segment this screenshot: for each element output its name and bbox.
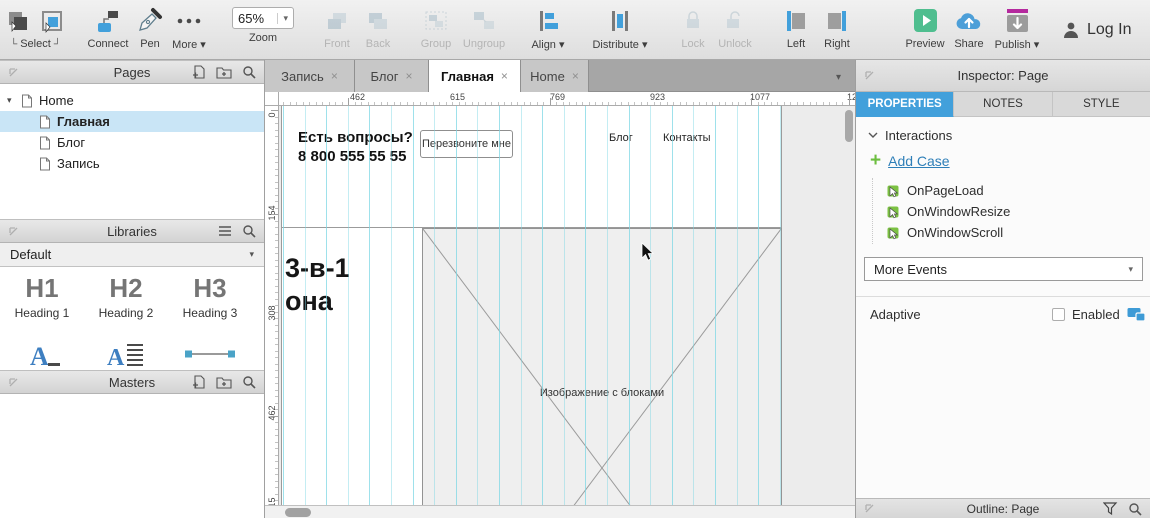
canvas-horizontal-scrollbar[interactable] bbox=[265, 505, 855, 518]
distribute-tool[interactable]: Distribute ▾ bbox=[588, 7, 652, 51]
event-row-onwindowresize[interactable]: OnWindowResize bbox=[886, 204, 1010, 219]
align-left-icon bbox=[784, 7, 808, 35]
preview-button[interactable]: Preview bbox=[901, 7, 949, 50]
tab-list-caret-icon[interactable]: ▾ bbox=[836, 72, 841, 83]
select-contain-icon[interactable] bbox=[40, 9, 65, 34]
align-left-label: Left bbox=[787, 38, 805, 50]
preview-play-icon bbox=[913, 7, 938, 35]
select-label: Select bbox=[20, 38, 51, 50]
event-label: OnWindowResize bbox=[907, 204, 1010, 219]
publish-label: Publish ▾ bbox=[995, 38, 1040, 51]
adaptive-enabled-checkbox[interactable] bbox=[1052, 308, 1065, 321]
publish-button[interactable]: Publish ▾ bbox=[990, 7, 1044, 51]
outline-filter-icon[interactable] bbox=[1103, 502, 1118, 516]
front-label: Front bbox=[324, 38, 350, 50]
tab-close-icon[interactable]: × bbox=[406, 69, 413, 83]
svg-text:A: A bbox=[30, 342, 49, 369]
adaptive-label: Adaptive bbox=[870, 307, 921, 322]
axure-app-window: └Select┘ Connect Pen More ▾ bbox=[0, 0, 1150, 518]
align-left-tool[interactable]: Left bbox=[777, 7, 815, 50]
publish-icon bbox=[1005, 7, 1030, 35]
more-label: More ▾ bbox=[172, 38, 206, 51]
share-button[interactable]: Share bbox=[947, 7, 991, 50]
zoom-value: 65% bbox=[238, 11, 264, 26]
page-heading-text[interactable]: 3-в-1 она bbox=[285, 252, 350, 318]
back-button: Back bbox=[357, 7, 399, 50]
login-label: Log In bbox=[1087, 21, 1131, 39]
lock-button: Lock bbox=[672, 7, 714, 50]
pen-icon bbox=[137, 7, 163, 35]
event-label: OnPageLoad bbox=[907, 183, 984, 198]
paragraph-widget-icon: A bbox=[103, 339, 149, 369]
page-header-section: Есть вопросы? 8 800 555 55 55 Перезвонит… bbox=[282, 106, 781, 228]
page-file-icon bbox=[39, 157, 51, 171]
left-sidebar: Pages ▾ bbox=[0, 60, 265, 518]
more-dots-icon bbox=[174, 7, 204, 35]
tab-label: Главная bbox=[441, 69, 494, 84]
more-events-value: More Events bbox=[874, 262, 947, 277]
image-placeholder[interactable]: Изображение с блоками bbox=[422, 228, 782, 505]
library-item-paragraph[interactable]: A bbox=[84, 339, 168, 370]
library-item-heading3[interactable]: H3 Heading 3 bbox=[168, 273, 252, 320]
v-ruler: 0 154 308 462 615 bbox=[265, 106, 279, 505]
plus-icon: + bbox=[870, 154, 881, 168]
h-ruler-label: 615 bbox=[450, 92, 465, 102]
library-item-label[interactable]: A bbox=[0, 339, 84, 370]
library-select[interactable]: Default ▾ bbox=[0, 243, 264, 267]
adaptive-enabled-row: Enabled bbox=[1052, 307, 1146, 322]
heading3-label: Heading 3 bbox=[168, 306, 252, 320]
connect-tool[interactable]: Connect bbox=[80, 7, 136, 50]
align-icon bbox=[536, 7, 560, 35]
interactions-section-header[interactable]: Interactions bbox=[868, 128, 952, 143]
unlock-label: Unlock bbox=[718, 38, 752, 50]
add-master-folder-icon[interactable] bbox=[216, 375, 232, 389]
canvas-horizontal-scrollbar-thumb[interactable] bbox=[285, 508, 311, 517]
ruler-corner bbox=[265, 92, 279, 106]
page-row-label: Запись bbox=[57, 156, 100, 171]
tab-close-icon[interactable]: × bbox=[501, 69, 508, 83]
expand-arrow-icon[interactable]: ▾ bbox=[7, 95, 15, 106]
share-label: Share bbox=[954, 38, 983, 50]
pages-tree: ▾ Home Главная Блог bbox=[0, 86, 264, 174]
page-row-zapis[interactable]: Запись bbox=[0, 153, 264, 174]
library-select-caret-icon: ▾ bbox=[249, 249, 254, 260]
tab-label: Блог bbox=[370, 69, 398, 84]
masters-panel-header: Masters bbox=[0, 370, 264, 394]
inspector-tabs: PROPERTIES NOTES STYLE bbox=[856, 92, 1150, 117]
login-button[interactable]: Log In bbox=[1062, 0, 1131, 60]
more-tool[interactable]: More ▾ bbox=[164, 7, 214, 51]
select-label-row: └Select┘ bbox=[7, 38, 64, 50]
event-label: OnWindowScroll bbox=[907, 225, 1003, 240]
h-ruler-label: 1077 bbox=[750, 92, 770, 102]
h-ruler: 462 615 769 923 1077 12 bbox=[279, 92, 855, 106]
unlock-icon bbox=[722, 7, 748, 35]
library-select-value: Default bbox=[10, 247, 51, 262]
library-item-hline[interactable] bbox=[168, 339, 252, 370]
tab-properties[interactable]: PROPERTIES bbox=[856, 92, 954, 117]
wireframe-page[interactable]: Есть вопросы? 8 800 555 55 55 Перезвонит… bbox=[281, 106, 782, 505]
front-icon bbox=[324, 7, 350, 35]
ungroup-icon bbox=[471, 7, 497, 35]
pen-tool[interactable]: Pen bbox=[133, 7, 167, 50]
back-icon bbox=[365, 7, 391, 35]
collapse-panel-icon[interactable] bbox=[8, 377, 19, 388]
placeholder-x-icon bbox=[423, 229, 781, 505]
library-item-heading1[interactable]: H1 Heading 1 bbox=[0, 273, 84, 320]
inspector-panel: Inspector: Page PROPERTIES NOTES STYLE I… bbox=[855, 60, 1150, 518]
canvas-vertical-scrollbar-thumb[interactable] bbox=[845, 110, 853, 142]
heading2-label: Heading 2 bbox=[84, 306, 168, 320]
share-cloud-icon bbox=[954, 7, 984, 35]
tab-zapis[interactable]: Запись × bbox=[265, 60, 355, 92]
add-page-icon[interactable] bbox=[192, 65, 206, 79]
back-label: Back bbox=[366, 38, 390, 50]
tab-close-icon[interactable]: × bbox=[331, 69, 338, 83]
collapse-panel-icon[interactable] bbox=[864, 503, 875, 514]
connect-label: Connect bbox=[88, 38, 129, 50]
page-file-icon bbox=[21, 94, 33, 108]
event-row-onpageload[interactable]: OnPageLoad bbox=[886, 183, 984, 198]
page-row-home[interactable]: ▾ Home bbox=[0, 90, 264, 111]
select-tool[interactable]: └Select┘ bbox=[6, 7, 65, 50]
outline-panel-header: Outline: Page bbox=[856, 498, 1150, 518]
select-right-bracket: ┘ bbox=[54, 39, 61, 50]
ungroup-label: Ungroup bbox=[463, 38, 505, 50]
page-file-icon bbox=[39, 115, 51, 129]
group-label: Group bbox=[421, 38, 452, 50]
page-row-label: Блог bbox=[57, 135, 85, 150]
heading2-glyph: H2 bbox=[84, 273, 168, 303]
heading1-label: Heading 1 bbox=[0, 306, 84, 320]
event-cursor-icon bbox=[886, 184, 900, 198]
libraries-search-icon[interactable] bbox=[242, 224, 256, 238]
pen-label: Pen bbox=[140, 38, 160, 50]
collapse-panel-icon[interactable] bbox=[8, 67, 19, 78]
heading3-glyph: H3 bbox=[168, 273, 252, 303]
document-tabbar: Запись × Блог × Главная × Home × ▾ bbox=[265, 60, 855, 92]
align-label: Align ▾ bbox=[531, 38, 564, 51]
events-guide-line bbox=[872, 178, 873, 244]
adaptive-devices-icon[interactable] bbox=[1127, 307, 1146, 322]
add-case-row[interactable]: + Add Case bbox=[870, 153, 950, 169]
add-case-link[interactable]: Add Case bbox=[888, 153, 949, 169]
ungroup-button: Ungroup bbox=[456, 7, 512, 50]
outline-search-icon[interactable] bbox=[1128, 502, 1142, 516]
inspector-title: Inspector: Page bbox=[856, 68, 1150, 83]
libraries-panel-header: Libraries bbox=[0, 219, 264, 243]
group-icon bbox=[423, 7, 449, 35]
align-right-tool[interactable]: Right bbox=[816, 7, 858, 50]
mouse-cursor-icon bbox=[641, 242, 657, 262]
nav-blog-link[interactable]: Блог bbox=[609, 132, 633, 144]
connect-icon bbox=[95, 7, 121, 35]
zoom-label: Zoom bbox=[249, 32, 277, 44]
label-widget-icon: A bbox=[22, 339, 62, 369]
toolbar: └Select┘ Connect Pen More ▾ bbox=[0, 0, 1150, 60]
chevron-down-icon bbox=[868, 132, 878, 139]
page-row-glavnaya[interactable]: Главная bbox=[0, 111, 264, 132]
tab-home[interactable]: Home × bbox=[521, 60, 589, 92]
user-icon bbox=[1062, 21, 1080, 39]
tab-blog[interactable]: Блог × bbox=[355, 60, 429, 92]
group-button: Group bbox=[413, 7, 459, 50]
canvas-area: Запись × Блог × Главная × Home × ▾ 462 6… bbox=[265, 60, 855, 518]
library-items-grid: H1 Heading 1 H2 Heading 2 H3 Heading 3 A bbox=[0, 267, 264, 370]
select-intersect-icon[interactable] bbox=[6, 9, 31, 34]
inspector-divider bbox=[856, 296, 1150, 297]
lock-icon bbox=[682, 7, 704, 35]
v-ruler-label: 462 bbox=[267, 402, 277, 424]
preview-label: Preview bbox=[905, 38, 944, 50]
h-ruler-label: 462 bbox=[350, 92, 365, 102]
library-item-heading2[interactable]: H2 Heading 2 bbox=[84, 273, 168, 320]
libraries-menu-icon[interactable] bbox=[218, 225, 232, 237]
zoom-tool: 65% ▾ Zoom bbox=[228, 7, 298, 44]
inspector-header: Inspector: Page bbox=[856, 60, 1150, 92]
event-row-onwindowscroll[interactable]: OnWindowScroll bbox=[886, 225, 1003, 240]
page-row-label: Home bbox=[39, 93, 74, 108]
h-ruler-label: 769 bbox=[550, 92, 565, 102]
h-ruler-label: 923 bbox=[650, 92, 665, 102]
pages-search-icon[interactable] bbox=[242, 65, 256, 79]
align-tool[interactable]: Align ▾ bbox=[522, 7, 574, 51]
canvas-viewport[interactable]: Есть вопросы? 8 800 555 55 55 Перезвонит… bbox=[279, 106, 855, 505]
distribute-icon bbox=[608, 7, 632, 35]
interactions-title: Interactions bbox=[885, 128, 952, 143]
front-button: Front bbox=[316, 7, 358, 50]
add-master-icon[interactable] bbox=[192, 375, 206, 389]
tab-notes[interactable]: NOTES bbox=[954, 92, 1052, 117]
align-right-label: Right bbox=[824, 38, 850, 50]
pages-panel-header: Pages bbox=[0, 60, 264, 84]
collapse-panel-icon[interactable] bbox=[8, 226, 19, 237]
tab-glavnaya[interactable]: Главная × bbox=[429, 60, 521, 92]
zoom-caret-icon: ▾ bbox=[277, 13, 288, 24]
more-events-caret-icon: ▾ bbox=[1128, 264, 1133, 275]
add-folder-icon[interactable] bbox=[216, 65, 232, 79]
tab-label: Запись bbox=[281, 69, 324, 84]
masters-content bbox=[0, 394, 264, 518]
page-row-label: Главная bbox=[57, 114, 110, 129]
masters-search-icon[interactable] bbox=[242, 375, 256, 389]
adaptive-enabled-label: Enabled bbox=[1072, 307, 1120, 322]
page-file-icon bbox=[39, 136, 51, 150]
more-events-dropdown[interactable]: More Events ▾ bbox=[864, 257, 1143, 281]
image-placeholder-label: Изображение с блоками bbox=[423, 387, 781, 399]
callback-button[interactable]: Перезвоните мне bbox=[420, 130, 513, 158]
page-row-blog[interactable]: Блог bbox=[0, 132, 264, 153]
unlock-button: Unlock bbox=[710, 7, 760, 50]
lock-label: Lock bbox=[681, 38, 704, 50]
tab-label: Home bbox=[530, 69, 565, 84]
zoom-select[interactable]: 65% ▾ bbox=[232, 7, 294, 29]
tab-close-icon[interactable]: × bbox=[572, 69, 579, 83]
align-right-icon bbox=[825, 7, 849, 35]
event-cursor-icon bbox=[886, 205, 900, 219]
svg-text:A: A bbox=[107, 345, 125, 369]
event-cursor-icon bbox=[886, 226, 900, 240]
nav-contacts-link[interactable]: Контакты bbox=[663, 132, 711, 144]
distribute-label: Distribute ▾ bbox=[592, 38, 647, 51]
heading1-glyph: H1 bbox=[0, 273, 84, 303]
tab-style[interactable]: STYLE bbox=[1053, 92, 1150, 117]
select-left-bracket: └ bbox=[10, 39, 17, 50]
horizontal-line-widget-icon bbox=[182, 339, 238, 369]
phone-question-text[interactable]: Есть вопросы? 8 800 555 55 55 bbox=[298, 128, 413, 166]
